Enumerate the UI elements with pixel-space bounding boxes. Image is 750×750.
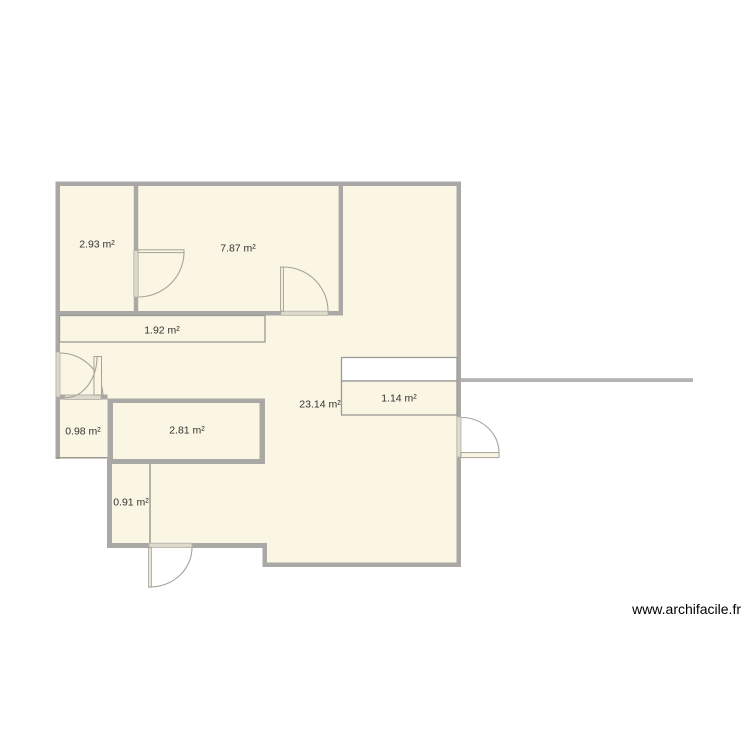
- wall-091-left[interactable]: [107, 459, 112, 548]
- wall-partition-787-main[interactable]: [339, 186, 343, 316]
- door-right-exterior[interactable]: [457, 417, 499, 458]
- room-label-192: 1.92 m²: [144, 325, 180, 337]
- room-label-091: 0.91 m²: [113, 497, 149, 509]
- room-label-114: 1.14 m²: [381, 393, 417, 405]
- watermark: www.archifacile.fr: [632, 601, 741, 617]
- door-opening[interactable]: [134, 251, 138, 298]
- wall-281-left[interactable]: [108, 399, 114, 465]
- room-label-293: 2.93 m²: [79, 239, 115, 251]
- wall-top[interactable]: [56, 182, 462, 187]
- room-label-787: 7.87 m²: [220, 243, 256, 255]
- door-panel[interactable]: [94, 357, 102, 396]
- room-label-098: 0.98 m²: [65, 426, 101, 438]
- floor-plan-svg: 2.93 m² 7.87 m² 1.92 m² 23.14 m² 1.14 m²…: [0, 0, 750, 750]
- door-panel[interactable]: [461, 453, 499, 458]
- wall-bottom-lower[interactable]: [263, 563, 462, 568]
- detached-wall-line[interactable]: [461, 378, 693, 382]
- room-label-2314: 23.14 m²: [299, 399, 341, 411]
- room-label-281: 2.81 m²: [169, 425, 205, 437]
- door-opening[interactable]: [56, 352, 60, 397]
- door-opening[interactable]: [457, 417, 461, 457]
- door-swing-arc: [462, 418, 500, 454]
- floor-plan-canvas: 2.93 m² 7.87 m² 1.92 m² 23.14 m² 1.14 m²…: [0, 0, 750, 750]
- door-opening[interactable]: [281, 311, 328, 315]
